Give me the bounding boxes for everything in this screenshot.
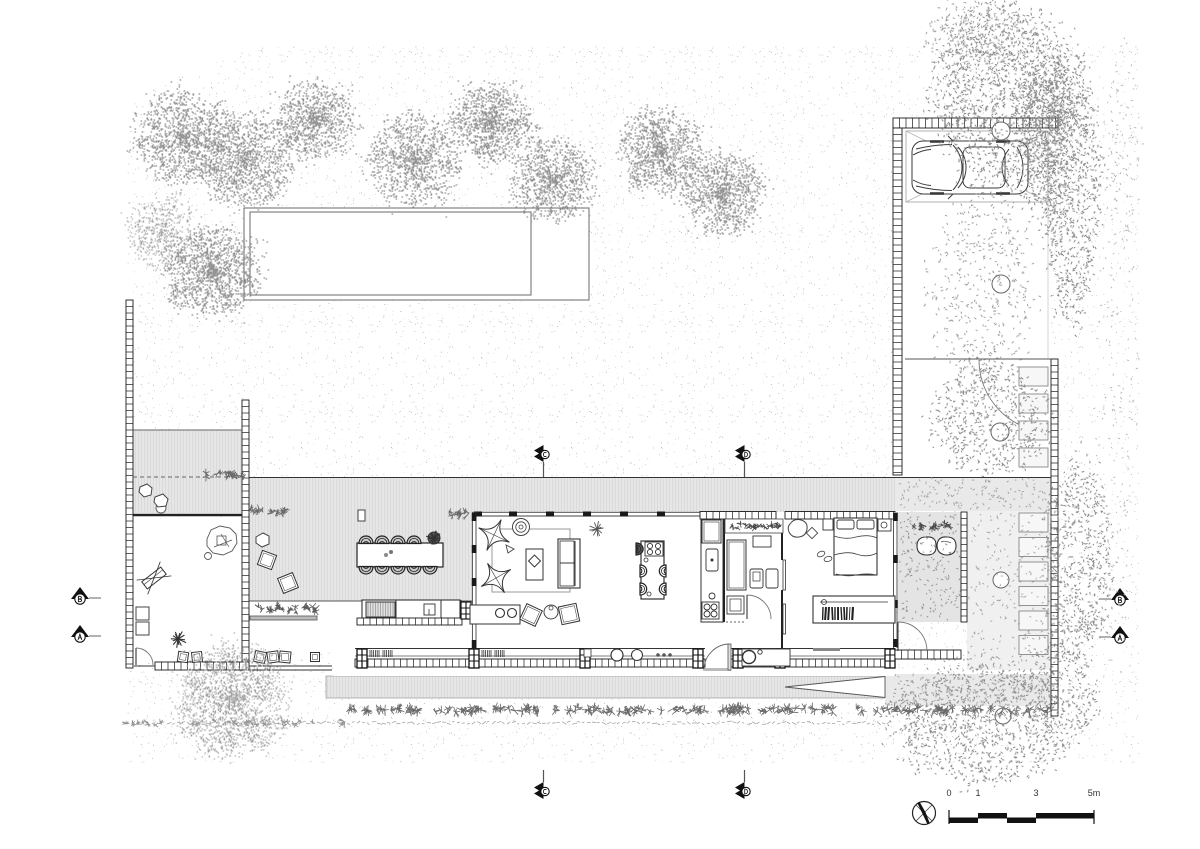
svg-text:0: 0 <box>946 788 951 798</box>
svg-text:3: 3 <box>1033 788 1038 798</box>
svg-text:5m: 5m <box>1088 788 1101 798</box>
svg-text:1: 1 <box>975 788 980 798</box>
